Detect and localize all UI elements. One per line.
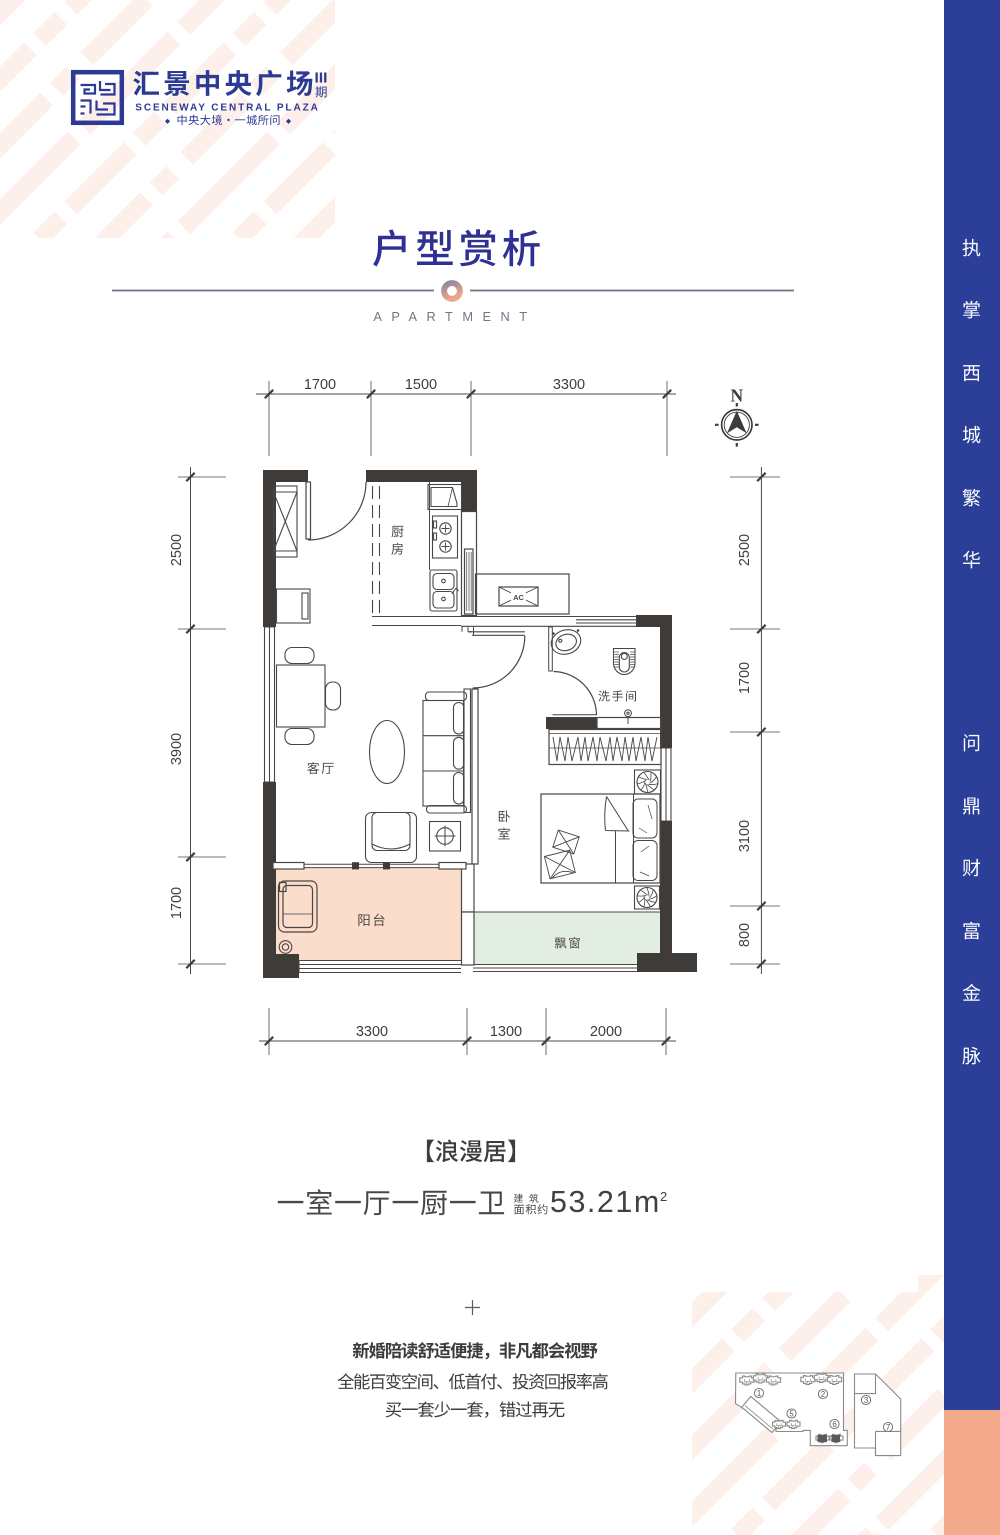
svg-text:2500: 2500 [169, 534, 185, 566]
svg-text:3300: 3300 [356, 1024, 388, 1040]
svg-text:800: 800 [737, 923, 753, 947]
svg-text:APARTMENT: APARTMENT [373, 309, 536, 324]
svg-text:1300: 1300 [490, 1024, 522, 1040]
svg-text:2000: 2000 [590, 1024, 622, 1040]
svg-text:1700: 1700 [737, 662, 753, 694]
svg-text:3: 3 [864, 1396, 868, 1405]
svg-text:1700: 1700 [304, 377, 336, 393]
svg-text:2500: 2500 [737, 534, 753, 566]
svg-text:2: 2 [660, 1189, 667, 1204]
svg-text:7: 7 [886, 1423, 890, 1432]
svg-text:6: 6 [832, 1420, 836, 1429]
svg-text:SCENEWAY CENTRAL PLAZA: SCENEWAY CENTRAL PLAZA [135, 103, 319, 114]
svg-text:3300: 3300 [553, 377, 585, 393]
svg-text:3900: 3900 [169, 733, 185, 765]
svg-text:2: 2 [821, 1390, 825, 1399]
svg-text:1700: 1700 [169, 887, 185, 919]
svg-text:5: 5 [789, 1409, 794, 1418]
svg-text:AC: AC [513, 593, 524, 602]
svg-text:3100: 3100 [737, 820, 753, 852]
svg-text:1500: 1500 [405, 377, 437, 393]
svg-text:53.21m: 53.21m [550, 1185, 661, 1219]
svg-text:1: 1 [757, 1389, 761, 1398]
svg-text:N: N [730, 386, 743, 406]
